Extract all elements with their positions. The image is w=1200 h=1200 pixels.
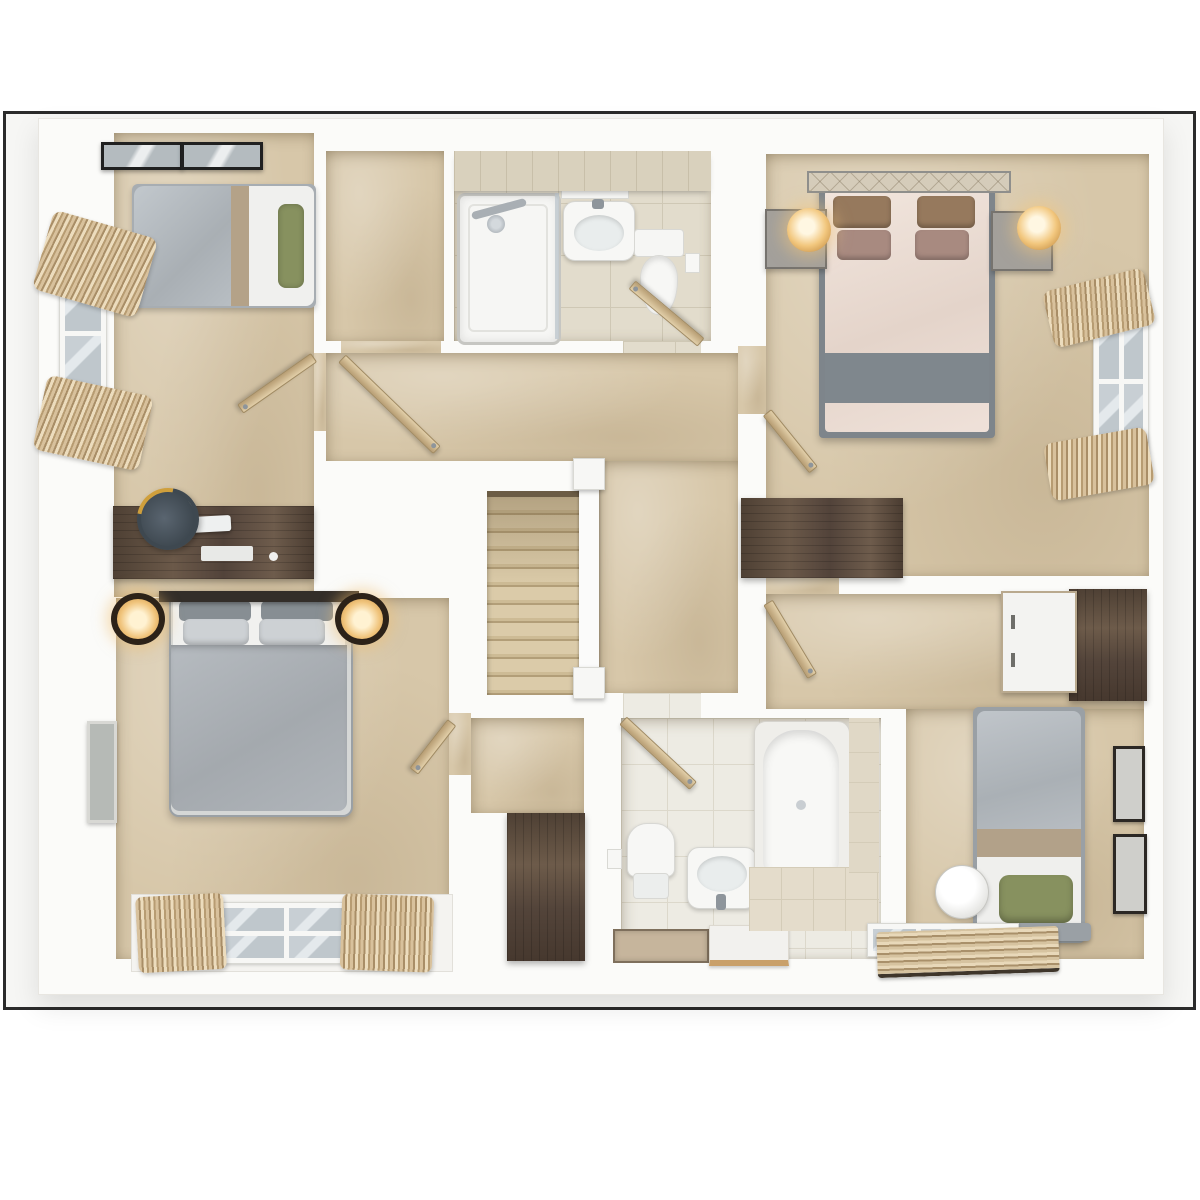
toilet-lid (627, 823, 675, 877)
bath-mat (613, 929, 709, 963)
pillow-mauve (837, 230, 891, 260)
doorway-bathroom (623, 693, 701, 718)
bathroom-basin (687, 847, 757, 909)
bedroom3-single-bed (132, 184, 316, 308)
wall-lamp-icon (111, 593, 165, 645)
shower-glass-screen (555, 193, 559, 339)
toilet-roll-holder (685, 253, 700, 273)
table-lamp-icon (787, 208, 831, 252)
framed-picture (1113, 746, 1145, 822)
shower-tray-inner (468, 204, 548, 332)
pillow-white (259, 619, 325, 645)
toilet-cistern (634, 229, 684, 257)
room-storage-floor (471, 718, 584, 813)
bedroom1-headboard-shelf (159, 591, 359, 602)
bath-mat-tray (709, 925, 789, 966)
drawer-handle (1011, 653, 1015, 667)
stair-handrail (579, 461, 599, 695)
staircase (449, 461, 599, 695)
basin-tap-icon (592, 199, 604, 209)
curtain-bundle (340, 893, 435, 972)
master-double-bed (819, 184, 995, 438)
floorplan-render (0, 0, 1200, 1200)
pillow-gray (261, 601, 333, 621)
room-top-closet-floor (326, 151, 444, 341)
keyboard (201, 546, 253, 561)
pillow-brown (833, 196, 891, 228)
roof-window-icon (101, 142, 183, 170)
mouse (269, 552, 278, 561)
window-pane (217, 936, 284, 959)
green-pillow (999, 875, 1073, 923)
master-dresser (741, 498, 903, 578)
toilet-roll-holder (607, 849, 622, 869)
shower-room-basin (563, 201, 635, 261)
bedroom2-desk (1001, 591, 1077, 693)
bathroom-toilet (627, 823, 673, 899)
house-walls (38, 118, 1164, 995)
pillow-white (183, 619, 249, 645)
doorway-master-bedroom (738, 346, 766, 414)
wall-lamp-icon (335, 593, 389, 645)
bathtub-drain (796, 800, 806, 810)
basin-bowl (574, 215, 624, 251)
wall-mirror (87, 721, 117, 823)
master-headboard-lattice (807, 171, 1011, 193)
blanket-runner (825, 353, 989, 403)
doorway-shower-room (623, 341, 701, 353)
curtain-bundle (135, 893, 227, 974)
bedroom1-bay-window (211, 902, 361, 964)
pillow-mauve (915, 230, 969, 260)
round-floor-lamp-icon (935, 865, 989, 919)
pillow-brown (917, 196, 975, 228)
doorway-top-closet (341, 341, 441, 353)
shower-head-icon (487, 215, 505, 233)
tub-side-tiles (849, 718, 879, 873)
basin-bowl (697, 856, 747, 892)
blanket-stripe (231, 186, 249, 306)
shower-wall-tiles (454, 151, 711, 191)
toilet-base (633, 873, 669, 899)
framed-picture (1113, 834, 1147, 914)
stair-newel-post-top (573, 458, 605, 490)
doorway-bedroom-2 (766, 576, 839, 594)
roof-window-icon (181, 142, 263, 170)
bedroom1-double-bed (169, 597, 353, 817)
blanket-stripe (977, 829, 1081, 857)
green-bolster-pillow (278, 204, 304, 288)
stair-treads (487, 497, 579, 695)
room-landing-lower-floor (599, 461, 738, 693)
basin-tap-icon (716, 894, 726, 910)
drawer-handle (1011, 615, 1015, 629)
tub-surround-tiles (749, 867, 879, 931)
storage-wardrobe (507, 813, 585, 961)
window-pane (217, 908, 284, 931)
duvet (977, 711, 1081, 833)
doorway-bedroom-3 (314, 353, 326, 431)
drawn-curtain (876, 926, 1059, 978)
bedroom2-single-bed (973, 707, 1085, 943)
pillow-gray (179, 601, 251, 621)
table-lamp-icon (1017, 206, 1061, 250)
stair-newel-post-bottom (573, 667, 605, 699)
duvet (171, 645, 347, 811)
bedroom2-wardrobe (1069, 589, 1147, 701)
